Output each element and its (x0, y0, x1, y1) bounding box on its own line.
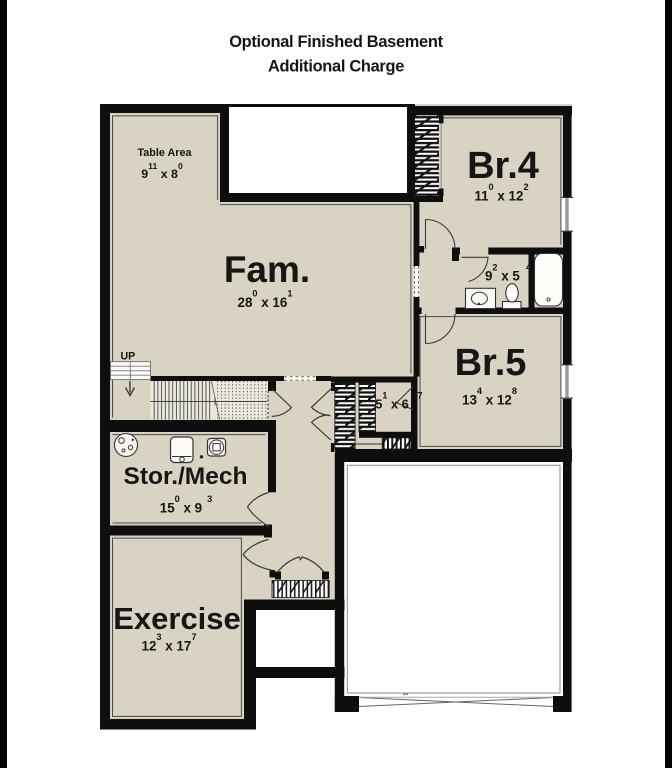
svg-text:Br.5: Br.5 (455, 342, 527, 384)
svg-text:UP: UP (121, 351, 136, 363)
svg-text:Table Area: Table Area (137, 147, 192, 159)
svg-text:Optional Finished Basement: Optional Finished Basement (229, 33, 443, 51)
svg-text:Stor./Mech: Stor./Mech (124, 463, 248, 490)
svg-text:Exercise: Exercise (113, 601, 241, 636)
svg-text:7: 7 (418, 391, 423, 401)
svg-text:Br.4: Br.4 (467, 145, 539, 187)
svg-text:Fam.: Fam. (224, 249, 310, 290)
svg-text:Additional Charge: Additional Charge (268, 58, 404, 76)
